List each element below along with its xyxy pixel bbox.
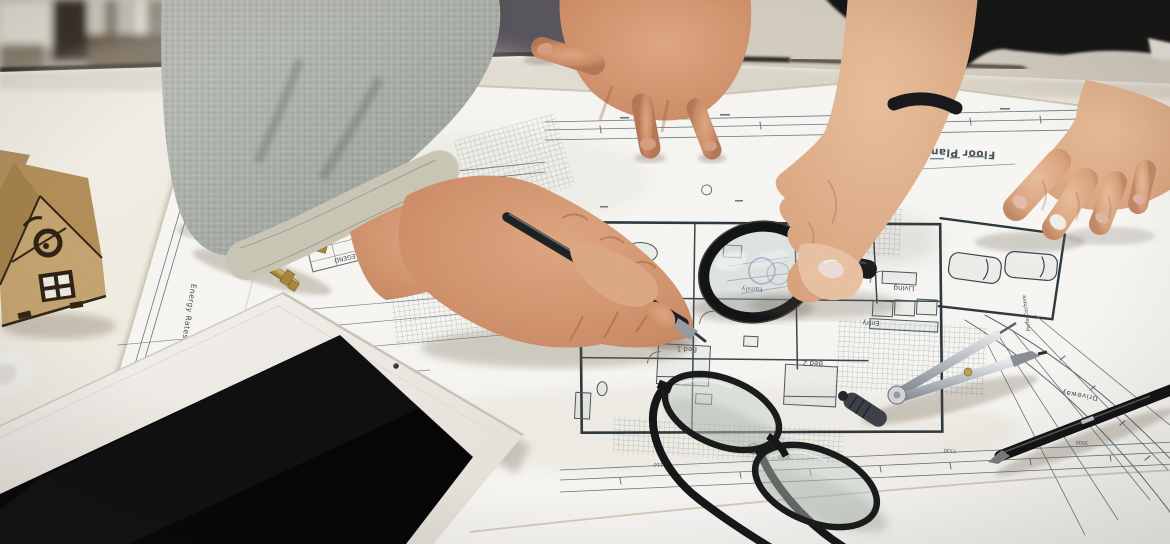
photo-canvas: Floor Plan: [0, 0, 1170, 544]
photo-blueprint-meeting: Floor Plan: [0, 0, 1170, 544]
film-grain: [0, 0, 1170, 544]
